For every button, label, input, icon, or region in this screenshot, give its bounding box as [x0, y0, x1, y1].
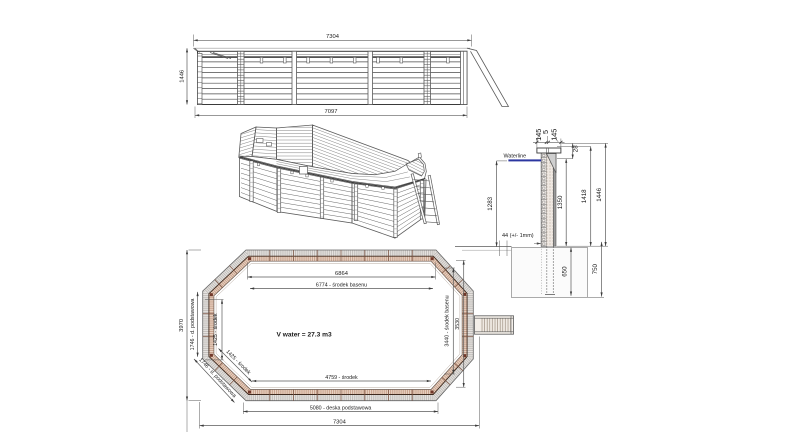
- svg-text:V water = 27.3 m3: V water = 27.3 m3: [277, 331, 332, 338]
- svg-text:3970: 3970: [179, 319, 185, 332]
- svg-text:1350: 1350: [557, 195, 564, 209]
- svg-text:650: 650: [562, 266, 569, 277]
- svg-text:6864: 6864: [335, 271, 349, 277]
- svg-text:6774 - środek basenu: 6774 - środek basenu: [316, 282, 367, 288]
- svg-text:1446: 1446: [596, 187, 603, 201]
- svg-text:5080 - deska podstawowa: 5080 - deska podstawowa: [310, 405, 372, 411]
- svg-text:1746 - d. podstawowa: 1746 - d. podstawowa: [190, 298, 196, 350]
- svg-text:1418: 1418: [581, 189, 588, 203]
- svg-text:1446: 1446: [180, 70, 186, 83]
- svg-text:7304: 7304: [333, 419, 347, 425]
- svg-text:3530: 3530: [455, 318, 461, 330]
- svg-text:3440 - środek basenu: 3440 - środek basenu: [445, 295, 451, 346]
- svg-text:750: 750: [592, 263, 599, 274]
- svg-text:1283: 1283: [487, 196, 494, 210]
- svg-text:145: 145: [549, 129, 558, 141]
- svg-text:28: 28: [573, 145, 580, 152]
- svg-text:1425 - środek: 1425 - środek: [213, 313, 219, 346]
- svg-text:Waterline: Waterline: [504, 154, 527, 160]
- svg-text:7097: 7097: [325, 109, 338, 115]
- svg-text:44 (+/- 1mm): 44 (+/- 1mm): [502, 233, 534, 239]
- svg-text:4759 - środek: 4759 - środek: [325, 375, 358, 381]
- svg-text:7304: 7304: [326, 34, 340, 40]
